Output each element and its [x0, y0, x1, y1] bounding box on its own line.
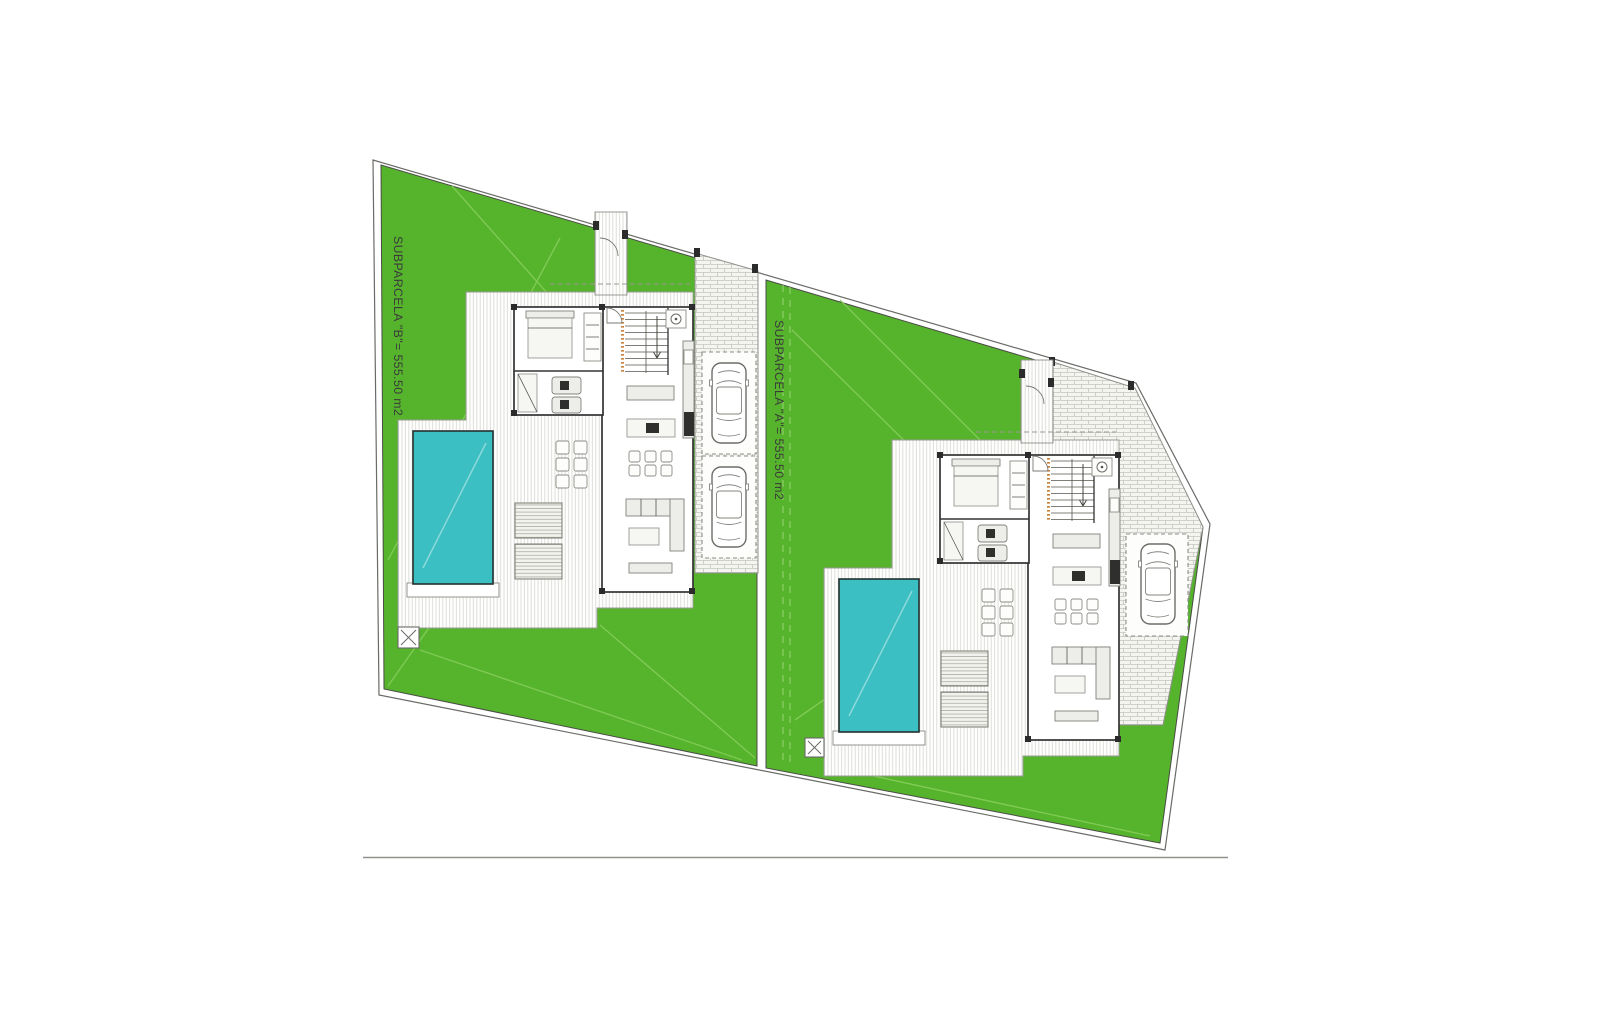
car-top-view-icon: [710, 467, 749, 547]
x-box-marker-icon: [398, 627, 419, 648]
parcel-a-label: SUBPARCELA "A"= 555.50 m2: [772, 320, 786, 500]
car-top-view-icon: [710, 363, 749, 443]
car-top-view-icon: [1139, 544, 1178, 624]
x-box-marker-icon: [805, 738, 824, 757]
parcel-b-label: SUBPARCELA "B"= 555.50 m2: [391, 236, 405, 416]
driveway-b: [694, 248, 758, 573]
site-plan-drawing: SUBPARCELA "B"= 555.50 m2 SUBPARCELA "A"…: [0, 0, 1600, 1024]
